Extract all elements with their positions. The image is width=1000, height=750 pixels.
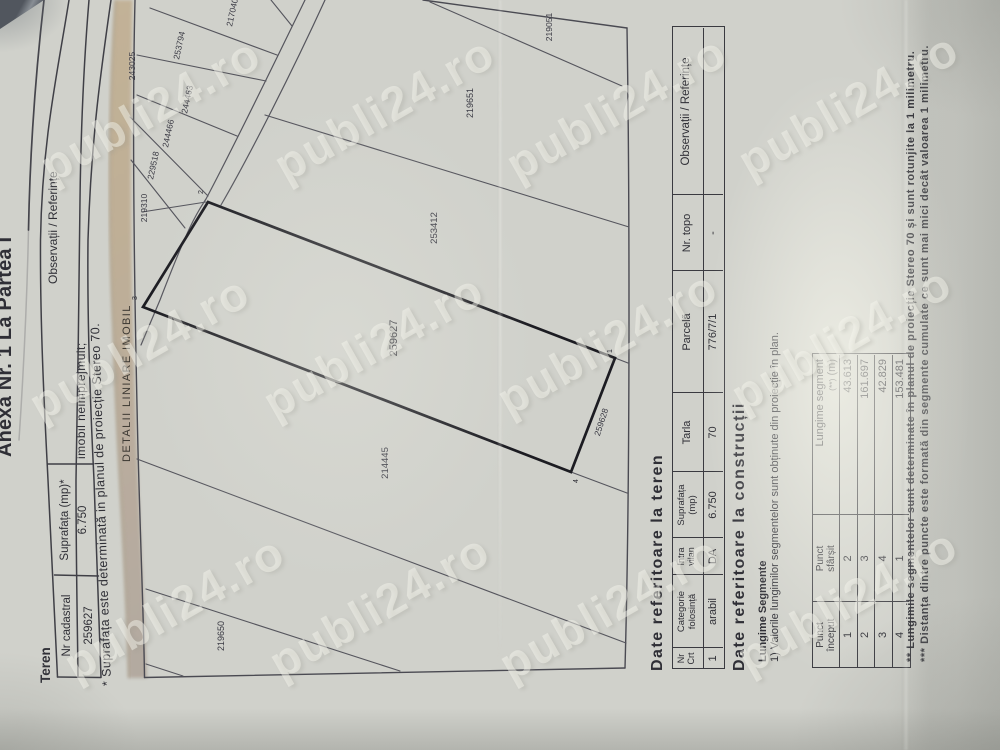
svg-text:2: 2	[198, 190, 205, 194]
svg-text:243025: 243025	[127, 52, 137, 81]
svg-text:244463: 244463	[179, 84, 195, 114]
svg-text:214445: 214445	[380, 447, 391, 479]
svg-text:219650: 219650	[216, 621, 226, 651]
svg-text:219051: 219051	[544, 13, 554, 42]
svg-text:253412: 253412	[429, 212, 440, 244]
svg-text:4: 4	[573, 479, 580, 483]
svg-text:219310: 219310	[139, 194, 149, 223]
svg-text:219651: 219651	[465, 88, 475, 118]
svg-text:1: 1	[607, 349, 614, 353]
svg-text:217040: 217040	[224, 0, 240, 27]
svg-text:259627: 259627	[388, 320, 400, 357]
svg-text:244466: 244466	[160, 118, 176, 148]
svg-text:253794: 253794	[171, 30, 187, 60]
svg-text:3: 3	[132, 296, 139, 300]
svg-text:229518: 229518	[145, 150, 161, 180]
